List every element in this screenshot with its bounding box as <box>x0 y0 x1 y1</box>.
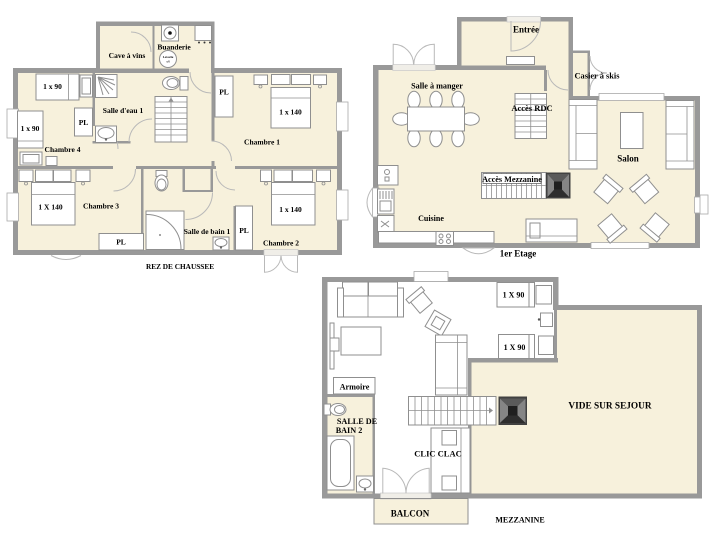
svg-text:1 X 90: 1 X 90 <box>504 343 526 352</box>
svg-text:Salle de bain 1: Salle de bain 1 <box>184 227 231 236</box>
svg-text:Chambre 2: Chambre 2 <box>263 239 299 248</box>
svg-text:1 x 90: 1 x 90 <box>43 82 62 91</box>
svg-text:PL: PL <box>239 226 249 235</box>
svg-text:1 x 140: 1 x 140 <box>279 205 302 214</box>
svg-text:Accès RDC: Accès RDC <box>511 103 552 113</box>
svg-text:CLIC CLAC: CLIC CLAC <box>414 449 461 459</box>
svg-text:1 x 140: 1 x 140 <box>279 108 302 117</box>
svg-text:Cave à vins: Cave à vins <box>109 51 146 60</box>
svg-text:Chambre 4: Chambre 4 <box>45 145 81 154</box>
svg-text:Lavarie: Lavarie <box>163 55 174 59</box>
svg-text:MEZZANINE: MEZZANINE <box>495 516 544 525</box>
svg-text:Entrée: Entrée <box>513 25 539 35</box>
svg-text:PL: PL <box>79 118 89 127</box>
svg-text:Salon: Salon <box>617 154 639 164</box>
svg-text:SALLE DE: SALLE DE <box>337 417 378 426</box>
svg-text:Casier à skis: Casier à skis <box>575 72 621 81</box>
svg-text:Accès Mezzanine: Accès Mezzanine <box>482 175 542 184</box>
svg-text:Chambre 3: Chambre 3 <box>83 202 119 211</box>
svg-text:BALCON: BALCON <box>391 509 430 519</box>
svg-text:s/l: s/l <box>166 60 169 64</box>
svg-text:Armoire: Armoire <box>340 383 370 392</box>
svg-text:1 X 140: 1 X 140 <box>38 203 62 212</box>
svg-text:VIDE SUR SEJOUR: VIDE SUR SEJOUR <box>568 402 651 412</box>
svg-text:REZ DE CHAUSSEE: REZ DE CHAUSSEE <box>146 262 214 271</box>
svg-text:Buanderie: Buanderie <box>157 43 191 52</box>
svg-text:Cuisine: Cuisine <box>418 214 444 223</box>
svg-text:1 X 90: 1 X 90 <box>503 291 525 300</box>
svg-text:Salle à manger: Salle à manger <box>411 82 463 91</box>
svg-text:1er Etage: 1er Etage <box>500 249 537 259</box>
svg-text:1 x 90: 1 x 90 <box>21 124 40 133</box>
svg-text:PL: PL <box>219 88 229 97</box>
svg-text:PL: PL <box>116 238 126 247</box>
svg-text:BAIN 2: BAIN 2 <box>336 426 363 435</box>
svg-text:Salle d'eau 1: Salle d'eau 1 <box>103 106 144 115</box>
svg-text:Chambre 1: Chambre 1 <box>244 138 280 147</box>
